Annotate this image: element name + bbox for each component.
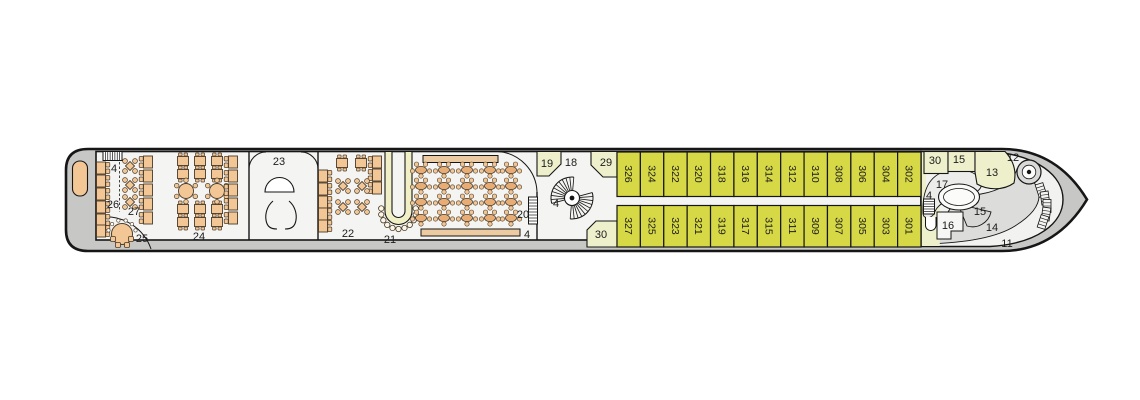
chair-icon <box>123 159 128 164</box>
chair-icon <box>224 185 228 190</box>
chair-icon <box>218 166 222 169</box>
cabin-number: 322 <box>669 165 681 183</box>
bar-stool-icon <box>379 206 384 211</box>
ship-deck-plan: 326324322320318316314312310308306304302 … <box>0 0 1140 400</box>
chair-icon <box>328 190 332 195</box>
chair-icon <box>139 157 143 162</box>
cabin-number: 307 <box>833 217 845 235</box>
chair-icon <box>368 157 372 162</box>
chair-icon <box>328 209 332 214</box>
label-stairs-aft: 4 <box>111 163 117 175</box>
buffet-table-top <box>423 156 498 163</box>
chair-icon <box>133 195 138 200</box>
chair-icon <box>224 171 228 176</box>
cabin-number: 311 <box>786 218 798 235</box>
chair-icon <box>179 227 183 230</box>
lounge-sofa-icon <box>416 166 427 173</box>
chair-icon <box>504 194 508 198</box>
label-area-22: 22 <box>342 228 354 240</box>
chair-icon <box>224 205 228 210</box>
table-icon <box>144 170 153 182</box>
chair-icon <box>343 168 347 171</box>
table-icon <box>373 156 382 168</box>
chair-icon <box>433 169 437 173</box>
chair-icon <box>469 210 473 214</box>
chair-icon <box>479 169 483 173</box>
chair-icon <box>213 214 217 217</box>
chair-icon <box>111 237 116 242</box>
chair-icon <box>414 210 418 214</box>
chair-icon <box>517 185 521 189</box>
cabin-number: 315 <box>762 217 774 235</box>
chair-icon <box>328 184 332 189</box>
cabin-number: 323 <box>669 217 681 235</box>
chair-icon <box>479 201 483 205</box>
lounge-sofa-icon <box>506 198 517 205</box>
lounge-sofa-icon <box>485 166 496 173</box>
chair-icon <box>442 222 446 226</box>
table-icon <box>319 208 328 220</box>
label-area-25: 25 <box>136 233 148 245</box>
chair-icon <box>179 166 183 169</box>
table-icon <box>212 170 223 179</box>
label-area-19: 19 <box>541 158 553 170</box>
table-icon <box>337 159 348 168</box>
chair-icon <box>500 169 504 173</box>
chair-icon <box>513 178 517 182</box>
label-area-12: 12 <box>1007 152 1019 164</box>
cabin-number: 306 <box>856 165 868 183</box>
cabin-number: 310 <box>809 165 821 183</box>
chair-icon <box>465 174 469 178</box>
cabin-number: 305 <box>856 217 868 235</box>
table-icon <box>195 218 206 227</box>
table-icon <box>144 156 153 168</box>
lounge-sofa-icon <box>462 198 473 205</box>
table-icon <box>97 201 106 213</box>
chair-icon <box>437 210 441 214</box>
chair-icon <box>116 243 121 248</box>
chair-icon <box>469 178 473 182</box>
stairs-icon <box>529 197 538 224</box>
chair-icon <box>338 155 342 158</box>
chair-icon <box>488 174 492 178</box>
chair-icon <box>410 185 414 189</box>
chair-icon <box>414 194 418 198</box>
chair-icon <box>196 214 200 217</box>
chair-icon <box>513 194 517 198</box>
chair-icon <box>123 188 128 193</box>
cabin-number: 312 <box>786 165 798 183</box>
chair-icon <box>346 200 351 205</box>
chair-icon <box>328 215 332 220</box>
chair-icon <box>179 214 183 217</box>
lounge-sofa-icon <box>485 198 496 205</box>
label-area-13: 13 <box>986 167 998 179</box>
lounge-sofa-icon <box>416 198 427 205</box>
chair-icon <box>224 177 228 182</box>
chair-icon <box>456 217 460 221</box>
cabin-number: 314 <box>762 165 774 183</box>
label-area-15-oval: 15 <box>974 206 986 218</box>
chair-icon <box>442 206 446 210</box>
chair-icon <box>509 222 513 226</box>
chair-icon <box>328 177 332 182</box>
chair-icon <box>215 199 220 204</box>
table-icon <box>319 170 328 182</box>
cabin-number: 321 <box>692 217 704 235</box>
chair-icon <box>106 232 110 237</box>
chair-icon <box>357 168 361 171</box>
chair-icon <box>201 179 205 182</box>
cabin-number: 327 <box>622 217 634 235</box>
chair-icon <box>355 179 360 184</box>
chair-icon <box>218 153 222 156</box>
chair-icon <box>442 174 446 178</box>
bow-lift <box>926 217 937 231</box>
label-area-30-bow: 30 <box>929 155 941 167</box>
cabin-row-top: 326324322320318316314312310308306304302 <box>617 152 921 197</box>
chair-icon <box>193 183 198 188</box>
chair-icon <box>174 194 179 199</box>
chair-icon <box>184 227 188 230</box>
chair-icon <box>107 229 110 232</box>
label-area-17: 17 <box>936 179 948 191</box>
chair-icon <box>357 155 361 158</box>
lounge-sofa-icon <box>485 214 496 221</box>
chair-icon <box>450 217 454 221</box>
chair-icon <box>224 199 228 204</box>
lounge-sofa-icon <box>439 214 450 221</box>
chair-icon <box>414 178 418 182</box>
chair-icon <box>201 166 205 169</box>
table-icon <box>319 220 328 232</box>
chair-icon <box>193 194 198 199</box>
label-area-30-mid: 30 <box>595 229 607 241</box>
chair-icon <box>139 171 143 176</box>
chair-icon <box>492 210 496 214</box>
chair-icon <box>201 201 205 204</box>
chair-icon <box>437 194 441 198</box>
chair-icon <box>139 219 143 224</box>
chair-icon <box>473 217 477 221</box>
chair-icon <box>196 201 200 204</box>
chair-icon <box>488 222 492 226</box>
chair-icon <box>196 179 200 182</box>
cabin-row-bottom: 327325323321319317315311309307305303301 <box>617 206 921 248</box>
table-icon <box>356 159 367 168</box>
chair-icon <box>213 166 217 169</box>
whirlpool-icon <box>1017 160 1041 184</box>
chair-icon <box>133 159 138 164</box>
label-area-18: 18 <box>565 157 577 169</box>
chair-icon <box>123 205 128 210</box>
chair-icon <box>134 229 137 232</box>
chair-icon <box>460 178 464 182</box>
chair-icon <box>224 213 228 218</box>
chair-icon <box>423 210 427 214</box>
chair-icon <box>423 194 427 198</box>
table-icon <box>319 183 328 195</box>
chair-icon <box>456 201 460 205</box>
cabin-number: 302 <box>903 165 915 183</box>
chair-icon <box>446 178 450 182</box>
chair-icon <box>419 174 423 178</box>
chair-icon <box>201 227 205 230</box>
chair-icon <box>368 183 372 188</box>
table-icon <box>212 218 223 227</box>
bar-stool-icon <box>402 225 407 230</box>
chair-icon <box>213 153 217 156</box>
chair-icon <box>336 200 341 205</box>
label-area-11: 11 <box>1001 238 1012 250</box>
chair-icon <box>123 178 128 183</box>
table-icon <box>144 198 153 210</box>
chair-icon <box>460 194 464 198</box>
label-area-15-top: 15 <box>953 154 965 166</box>
label-area-16: 16 <box>942 220 954 232</box>
table-icon <box>97 175 106 187</box>
bench-bottom <box>421 229 520 236</box>
chair-icon <box>346 179 351 184</box>
chair-icon <box>218 214 222 217</box>
table-icon <box>195 205 206 214</box>
chair-icon <box>509 190 513 194</box>
chair-icon <box>437 178 441 182</box>
chair-icon <box>196 166 200 169</box>
chair-icon <box>336 189 341 194</box>
chair-icon <box>423 178 427 182</box>
chair-icon <box>139 191 143 196</box>
chair-icon <box>336 179 341 184</box>
chair-icon <box>139 163 143 168</box>
chair-icon <box>414 162 418 166</box>
chair-icon <box>513 162 517 166</box>
chair-icon <box>433 201 437 205</box>
table-icon <box>319 196 328 208</box>
bar-stool-icon <box>381 218 386 223</box>
chair-icon <box>117 219 120 222</box>
chair-icon <box>124 219 127 222</box>
table-icon <box>229 212 238 224</box>
chair-icon <box>139 177 143 182</box>
table-icon <box>178 218 189 227</box>
chair-icon <box>110 222 113 225</box>
chair-icon <box>437 162 441 166</box>
chair-icon <box>365 210 370 215</box>
chair-icon <box>362 155 366 158</box>
label-area-21: 21 <box>384 234 396 246</box>
label-area-23: 23 <box>273 156 285 168</box>
lounge-sofa-icon <box>485 182 496 189</box>
table-icon <box>97 214 106 226</box>
chair-icon <box>517 201 521 205</box>
chair-icon <box>355 200 360 205</box>
table-icon <box>144 184 153 196</box>
chair-icon <box>218 227 222 230</box>
chair-icon <box>427 201 431 205</box>
chair-icon <box>427 217 431 221</box>
chair-icon <box>106 215 110 220</box>
chair-icon <box>483 162 487 166</box>
deck-plan-page: 326324322320318316314312310308306304302 … <box>0 0 1140 400</box>
chair-icon <box>419 190 423 194</box>
chair-icon <box>473 185 477 189</box>
cabin-number: 324 <box>646 165 658 183</box>
chair-icon <box>419 222 423 226</box>
chair-icon <box>500 201 504 205</box>
chair-icon <box>123 169 128 174</box>
chair-icon <box>328 203 332 208</box>
chair-icon <box>504 210 508 214</box>
cabin-number: 320 <box>692 165 704 183</box>
chair-icon <box>483 194 487 198</box>
chair-icon <box>224 157 228 162</box>
table-icon <box>212 157 223 166</box>
chair-icon <box>201 214 205 217</box>
chair-icon <box>106 169 110 174</box>
lounge-sofa-icon <box>439 182 450 189</box>
chair-icon <box>479 185 483 189</box>
table-icon <box>229 156 238 168</box>
label-area-24: 24 <box>193 231 205 243</box>
table-icon <box>178 157 189 166</box>
chair-icon <box>328 197 332 202</box>
bar-stool-icon <box>385 222 390 227</box>
chair-icon <box>469 162 473 166</box>
chair-icon <box>483 210 487 214</box>
chair-icon <box>446 210 450 214</box>
table-icon <box>144 212 153 224</box>
chair-icon <box>488 190 492 194</box>
table-icon <box>229 170 238 182</box>
chair-icon <box>473 201 477 205</box>
chair-icon <box>179 201 183 204</box>
chair-icon <box>450 201 454 205</box>
chair-icon <box>469 194 473 198</box>
cabin-number: 316 <box>739 165 751 183</box>
label-stairs-bow: 4 <box>926 190 932 202</box>
chair-icon <box>504 178 508 182</box>
chair-icon <box>483 178 487 182</box>
chair-icon <box>328 171 332 176</box>
round-table-icon <box>179 184 194 199</box>
chair-icon <box>509 174 513 178</box>
chair-icon <box>106 221 110 226</box>
label-stairs-spiral: 4 <box>553 198 559 210</box>
chair-icon <box>365 179 370 184</box>
chair-icon <box>504 162 508 166</box>
label-area-27: 27 <box>128 206 140 218</box>
chair-icon <box>492 178 496 182</box>
lounge-sofa-icon <box>506 182 517 189</box>
chair-icon <box>215 178 220 183</box>
chair-icon <box>473 169 477 173</box>
table-icon <box>373 169 382 181</box>
chair-icon <box>419 206 423 210</box>
chair-icon <box>179 179 183 182</box>
chair-icon <box>362 168 366 171</box>
chair-icon <box>328 221 332 226</box>
lounge-sofa-icon <box>506 214 517 221</box>
bar-stool-icon <box>396 226 401 231</box>
chair-icon <box>410 201 414 205</box>
label-area-29: 29 <box>600 157 612 169</box>
cabin-number: 303 <box>879 217 891 235</box>
chair-icon <box>224 163 228 168</box>
cabin-number: 325 <box>646 217 658 235</box>
chair-icon <box>355 189 360 194</box>
round-table-icon <box>210 184 225 199</box>
lounge-sofa-icon <box>462 214 473 221</box>
lounge-sofa-icon <box>462 182 473 189</box>
label-area-26: 26 <box>107 199 119 211</box>
lounge-sofa-icon <box>462 166 473 173</box>
chair-icon <box>130 222 133 225</box>
chair-icon <box>465 190 469 194</box>
chair-icon <box>423 162 427 166</box>
chair-icon <box>205 183 210 188</box>
chair-icon <box>368 163 372 168</box>
chair-icon <box>184 214 188 217</box>
chair-icon <box>224 219 228 224</box>
chair-icon <box>184 199 189 204</box>
chair-icon <box>517 169 521 173</box>
table-icon <box>212 205 223 214</box>
bar-stool-icon <box>407 222 412 227</box>
chair-icon <box>492 162 496 166</box>
table-icon <box>195 157 206 166</box>
chair-icon <box>410 217 414 221</box>
table-icon <box>373 182 382 194</box>
chair-icon <box>460 162 464 166</box>
chair-icon <box>179 153 183 156</box>
chair-icon <box>365 200 370 205</box>
chair-icon <box>465 206 469 210</box>
label-area-20: 20 <box>517 209 529 221</box>
chair-icon <box>346 210 351 215</box>
cabin-number: 317 <box>739 217 751 235</box>
chair-icon <box>450 169 454 173</box>
chair-icon <box>446 194 450 198</box>
chair-icon <box>106 176 110 181</box>
cabin-number: 301 <box>903 217 915 235</box>
chair-icon <box>460 210 464 214</box>
chair-icon <box>365 189 370 194</box>
chair-icon <box>184 166 188 169</box>
chair-icon <box>133 188 138 193</box>
chair-icon <box>133 178 138 183</box>
chair-icon <box>205 194 210 199</box>
chair-icon <box>368 170 372 175</box>
table-icon <box>178 170 189 179</box>
cabin-number: 318 <box>716 165 728 183</box>
chair-icon <box>184 153 188 156</box>
chair-icon <box>509 206 513 210</box>
chair-icon <box>328 227 332 232</box>
cabin-number: 308 <box>833 165 845 183</box>
table-icon <box>229 184 238 196</box>
chair-icon <box>433 217 437 221</box>
chair-icon <box>456 169 460 173</box>
chair-icon <box>139 199 143 204</box>
chair-icon <box>456 185 460 189</box>
label-area-14: 14 <box>986 222 998 234</box>
chair-icon <box>427 169 431 173</box>
chair-icon <box>346 189 351 194</box>
chair-icon <box>338 168 342 171</box>
table-icon <box>195 170 206 179</box>
